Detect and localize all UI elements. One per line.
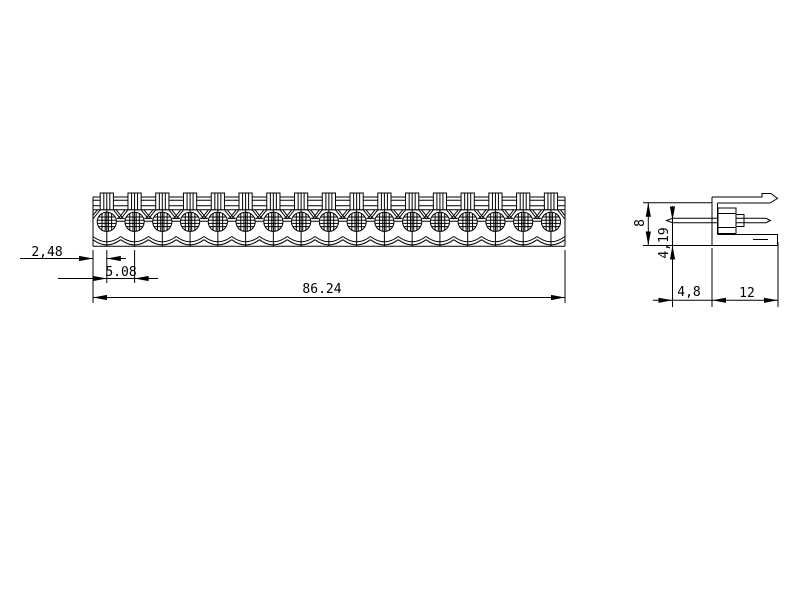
dimension-arrowhead: [659, 298, 673, 303]
pin-unit: [201, 193, 236, 246]
pin-unit: [257, 193, 292, 246]
dimension-arrowhead: [764, 298, 778, 303]
dimension-arrowhead: [646, 232, 651, 246]
dimension-arrowhead: [712, 298, 726, 303]
pin-seat-block: [718, 208, 736, 234]
contact-pin-right: [744, 218, 771, 222]
bottom-base: [712, 235, 778, 246]
pin-unit: [146, 193, 181, 246]
pin-collar: [736, 215, 744, 227]
solder-pin-left: [667, 218, 719, 222]
dim-label-height: 8: [633, 219, 648, 227]
front-view-pin-strip: [90, 193, 568, 246]
pin-unit: [479, 193, 514, 246]
cad-drawing-canvas: 2,48 5.08 86.24 8 4,19 4,8 12: [0, 0, 800, 600]
dim-label-pin-offset: 4,19: [657, 227, 672, 258]
top-arm-latch: [712, 194, 778, 204]
pin-unit: [229, 193, 264, 246]
pin-unit: [368, 193, 403, 246]
dimension-arrowhead: [551, 295, 565, 300]
pin-unit: [451, 193, 486, 246]
dimension-arrowhead: [646, 203, 651, 217]
dim-label-depth: 12: [739, 286, 755, 301]
dim-label-end-margin: 2,48: [31, 245, 62, 260]
dimension-arrowhead: [135, 276, 149, 281]
dimension-arrowhead: [93, 295, 107, 300]
pin-unit: [507, 193, 542, 246]
side-view-connector: [667, 194, 778, 246]
technical-drawing: 2,48 5.08 86.24 8 4,19 4,8 12: [0, 0, 800, 600]
pin-unit: [423, 193, 458, 246]
pin-unit: [312, 193, 347, 246]
dim-label-total-length: 86.24: [302, 282, 341, 297]
pin-unit: [534, 193, 567, 246]
pin-unit: [395, 193, 430, 246]
pin-unit: [340, 193, 375, 246]
dimension-arrowhead: [107, 256, 121, 261]
pin-unit: [118, 193, 153, 246]
pin-unit: [90, 193, 125, 246]
pin-seat-detail: [718, 214, 744, 228]
pin-array: [90, 193, 568, 246]
pin-unit: [173, 193, 208, 246]
dimension-arrowhead: [79, 256, 93, 261]
dim-label-pin-protrusion: 4,8: [677, 285, 700, 300]
dim-label-pitch: 5.08: [105, 265, 136, 280]
pin-unit: [284, 193, 319, 246]
